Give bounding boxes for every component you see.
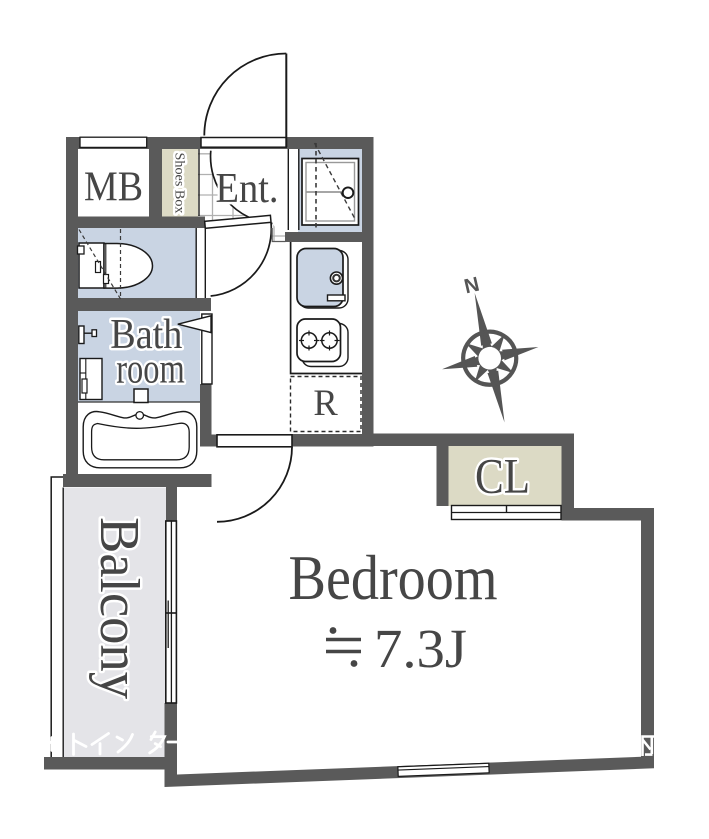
svg-text:Balcony: Balcony [88, 517, 150, 699]
svg-text:Shoes Box: Shoes Box [173, 153, 188, 214]
svg-text:7.3J: 7.3J [374, 618, 467, 679]
svg-text:Bedroom: Bedroom [289, 543, 498, 613]
svg-text:R: R [313, 382, 338, 423]
svg-text:CL: CL [475, 448, 530, 504]
svg-text:room: room [116, 347, 185, 393]
svg-text:MB: MB [84, 165, 143, 211]
svg-text:Ent.: Ent. [216, 166, 279, 212]
